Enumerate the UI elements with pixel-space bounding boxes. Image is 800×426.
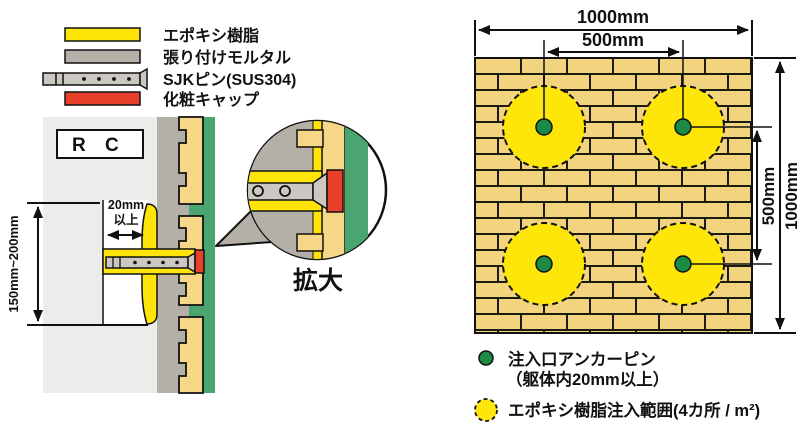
pin-length-label: 150mm~200mm — [6, 215, 21, 312]
pin-dot-2 — [675, 119, 691, 135]
mortar-swatch — [65, 50, 140, 63]
rc-label: R C — [72, 135, 126, 156]
decorative-cap — [195, 250, 204, 273]
svg-text:20mm: 20mm — [108, 198, 144, 212]
legend-pin-dot — [479, 351, 493, 365]
width-dimensions: 1000mm 500mm — [475, 7, 752, 56]
tile-3 — [179, 317, 203, 393]
height-total-label: 1000mm — [782, 162, 800, 230]
legend-label-epoxy: エポキシ樹脂 — [163, 26, 259, 45]
legend-epoxy-label: エポキシ樹脂注入範囲(4カ所 / m²) — [508, 400, 760, 420]
legend-pin-line1: 注入口アンカーピン — [508, 349, 656, 369]
svg-text:以上: 以上 — [113, 212, 139, 227]
magnified-label: 拡大 — [293, 267, 343, 295]
legend-label-cap: 化粧キャップ — [163, 90, 260, 109]
pin-dot-4 — [675, 256, 691, 272]
epoxy-swatch — [65, 28, 140, 41]
cap-swatch — [65, 92, 140, 105]
height-dimensions: 500mm 1000mm — [754, 58, 800, 333]
legend-epoxy-circle — [475, 399, 497, 421]
width-total-label: 1000mm — [577, 7, 649, 27]
legend-label-mortar: 張り付けモルタル — [163, 48, 291, 67]
legend-pin-line2: （躯体内20mm以上） — [506, 369, 669, 389]
diagram-canvas: エポキシ樹脂 張り付けモルタル SJKピン(SUS304) 化粧キャップ — [0, 0, 800, 426]
tile-1 — [179, 117, 203, 204]
width-spacing-label: 500mm — [582, 30, 644, 50]
material-legend: エポキシ樹脂 張り付けモルタル SJKピン(SUS304) 化粧キャップ — [43, 26, 296, 109]
legend-label-pin: SJKピン(SUS304) — [163, 71, 296, 89]
pin-dot-3 — [536, 256, 552, 272]
height-spacing-label: 500mm — [759, 167, 778, 226]
sjk-pin-icon — [43, 69, 147, 89]
tile-repair-diagram: エポキシ樹脂 張り付けモルタル SJKピン(SUS304) 化粧キャップ — [0, 0, 800, 426]
section-view: R C 20mm 以上 150mm~200mm — [6, 117, 386, 393]
joint-fill-lower — [189, 305, 203, 317]
pin-dot-1 — [536, 119, 552, 135]
joint-fill-upper — [189, 204, 203, 216]
plan-legend: 注入口アンカーピン （躯体内20mm以上） エポキシ樹脂注入範囲(4カ所 / m… — [475, 349, 760, 421]
plan-view: 1000mm 500mm 500mm 1000mm — [475, 7, 800, 333]
